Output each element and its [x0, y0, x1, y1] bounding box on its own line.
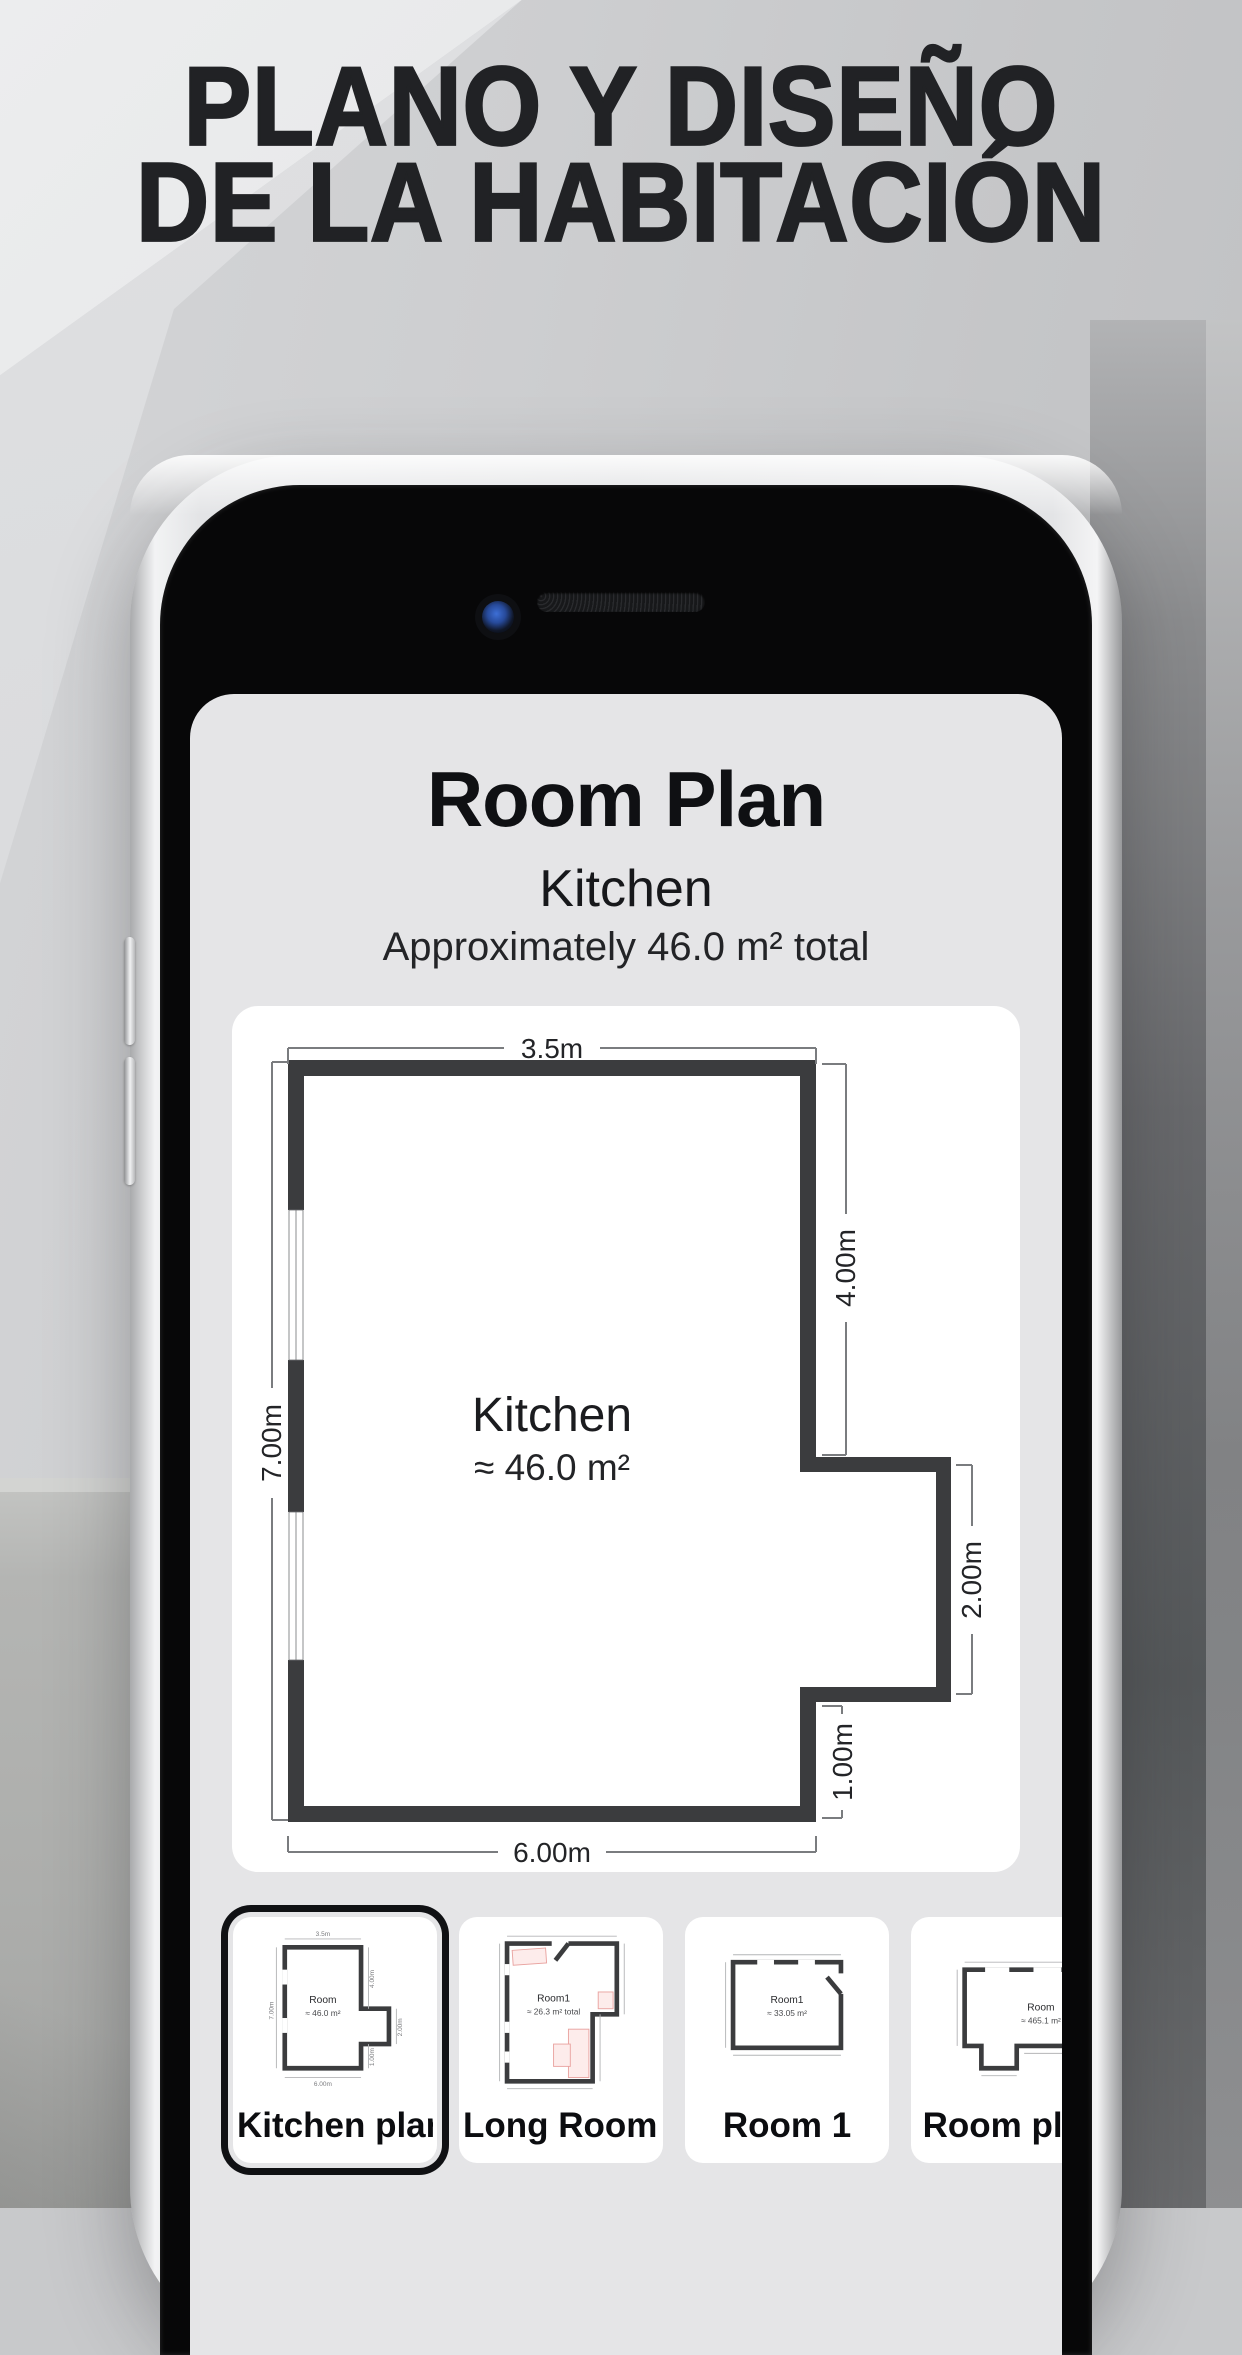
earpiece-speaker: [537, 592, 705, 612]
svg-text:7.00m: 7.00m: [269, 2002, 276, 2020]
app-title: Room Plan: [190, 754, 1062, 845]
plan-room-area: ≈ 46.0 m²: [474, 1447, 630, 1488]
thumbnail-long-room[interactable]: Room1 ≈ 26.3 m² total Long Room…: [459, 1917, 663, 2163]
thumbnail-long-room-drawing: Room1 ≈ 26.3 m² total: [466, 1925, 656, 2102]
wall-bump-outer: [936, 1457, 951, 1702]
background-right-edge: [1206, 320, 1242, 2208]
wall-step-in: [800, 1687, 951, 1702]
svg-text:6.00m: 6.00m: [513, 1837, 591, 1868]
wall-step-out: [800, 1457, 951, 1472]
front-camera: [482, 601, 514, 633]
window-upper: [286, 1210, 306, 1360]
app-screen: Room Plan Kitchen Approximately 46.0 m² …: [190, 694, 1062, 2355]
wall-bottom: [288, 1806, 816, 1822]
svg-text:3.5m: 3.5m: [521, 1033, 583, 1064]
phone-mockup: Room Plan Kitchen Approximately 46.0 m² …: [130, 455, 1122, 2355]
svg-text:2.00m: 2.00m: [956, 1541, 987, 1619]
dimension-right-lower: 1.00m: [822, 1706, 858, 1818]
current-room-name: Kitchen: [190, 859, 1062, 919]
thumbnail-room-plan-drawing: Room ≈ 465.1 m²: [918, 1925, 1062, 2102]
svg-text:1.00m: 1.00m: [369, 2048, 376, 2066]
svg-text:3.5m: 3.5m: [316, 1931, 330, 1938]
thumbnail-kitchen-plan-drawing: 3.5m 7.00m 4.00m 2.00m 1.00m 6.00m Room …: [240, 1925, 430, 2102]
thumbnail-label: Kitchen plan: [237, 2106, 433, 2145]
dimension-right-upper: 4.00m: [822, 1064, 861, 1455]
wall-right-lower: [800, 1687, 816, 1822]
svg-text:1.00m: 1.00m: [827, 1723, 858, 1801]
thumbnail-room-plan[interactable]: Room ≈ 465.1 m² Room plan: [911, 1917, 1062, 2163]
plan-room-label: Kitchen: [472, 1389, 632, 1442]
floor-plan-card: 3.5m 7.00m: [232, 1006, 1020, 1872]
dimension-top: 3.5m: [288, 1033, 816, 1064]
svg-text:Room: Room: [309, 1995, 336, 2006]
svg-text:≈ 26.3 m² total: ≈ 26.3 m² total: [527, 2006, 581, 2016]
svg-text:6.00m: 6.00m: [314, 2081, 332, 2088]
plan-thumbnail-strip: 3.5m 7.00m 4.00m 2.00m 1.00m 6.00m Room …: [233, 1917, 1062, 2163]
thumbnail-room-1[interactable]: Room1 ≈ 33.05 m² Room 1: [685, 1917, 889, 2163]
svg-text:4.00m: 4.00m: [369, 1970, 376, 1988]
volume-up-button: [124, 937, 135, 1045]
wall-right-upper: [800, 1060, 816, 1472]
svg-text:≈ 33.05 m²: ≈ 33.05 m²: [767, 2008, 807, 2018]
room-area-summary: Approximately 46.0 m² total: [190, 925, 1062, 970]
wall-left: [288, 1060, 304, 1822]
svg-text:≈ 465.1 m²: ≈ 465.1 m²: [1021, 2016, 1061, 2026]
dimension-bottom: 6.00m: [288, 1836, 816, 1868]
svg-text:4.00m: 4.00m: [830, 1229, 861, 1307]
thumbnail-label: Room plan: [923, 2106, 1062, 2145]
phone-bezel: Room Plan Kitchen Approximately 46.0 m² …: [160, 485, 1092, 2355]
svg-text:Room1: Room1: [771, 1995, 804, 2006]
svg-text:7.00m: 7.00m: [256, 1404, 287, 1482]
svg-text:2.00m: 2.00m: [397, 2018, 404, 2036]
page-title: PLANO Y DISEÑO DE LA HABITACIÓN: [0, 60, 1242, 251]
svg-text:Room1: Room1: [537, 1993, 570, 2004]
background-floor: [0, 1492, 150, 2208]
svg-text:Room: Room: [1027, 2003, 1054, 2014]
svg-text:≈ 46.0 m²: ≈ 46.0 m²: [305, 2008, 340, 2018]
thumbnail-kitchen-plan[interactable]: 3.5m 7.00m 4.00m 2.00m 1.00m 6.00m Room …: [233, 1917, 437, 2163]
floor-plan-drawing: 3.5m 7.00m: [232, 1006, 1020, 1872]
thumbnail-label: Room 1: [723, 2106, 851, 2145]
thumbnail-room-1-drawing: Room1 ≈ 33.05 m²: [692, 1925, 882, 2102]
dimension-right-bump: 2.00m: [956, 1465, 987, 1694]
volume-down-button: [124, 1057, 135, 1185]
thumbnail-label: Long Room…: [463, 2106, 659, 2145]
dimension-left: 7.00m: [256, 1062, 288, 1820]
page-title-line2: DE LA HABITACIÓN: [0, 156, 1242, 252]
window-lower: [286, 1512, 306, 1660]
